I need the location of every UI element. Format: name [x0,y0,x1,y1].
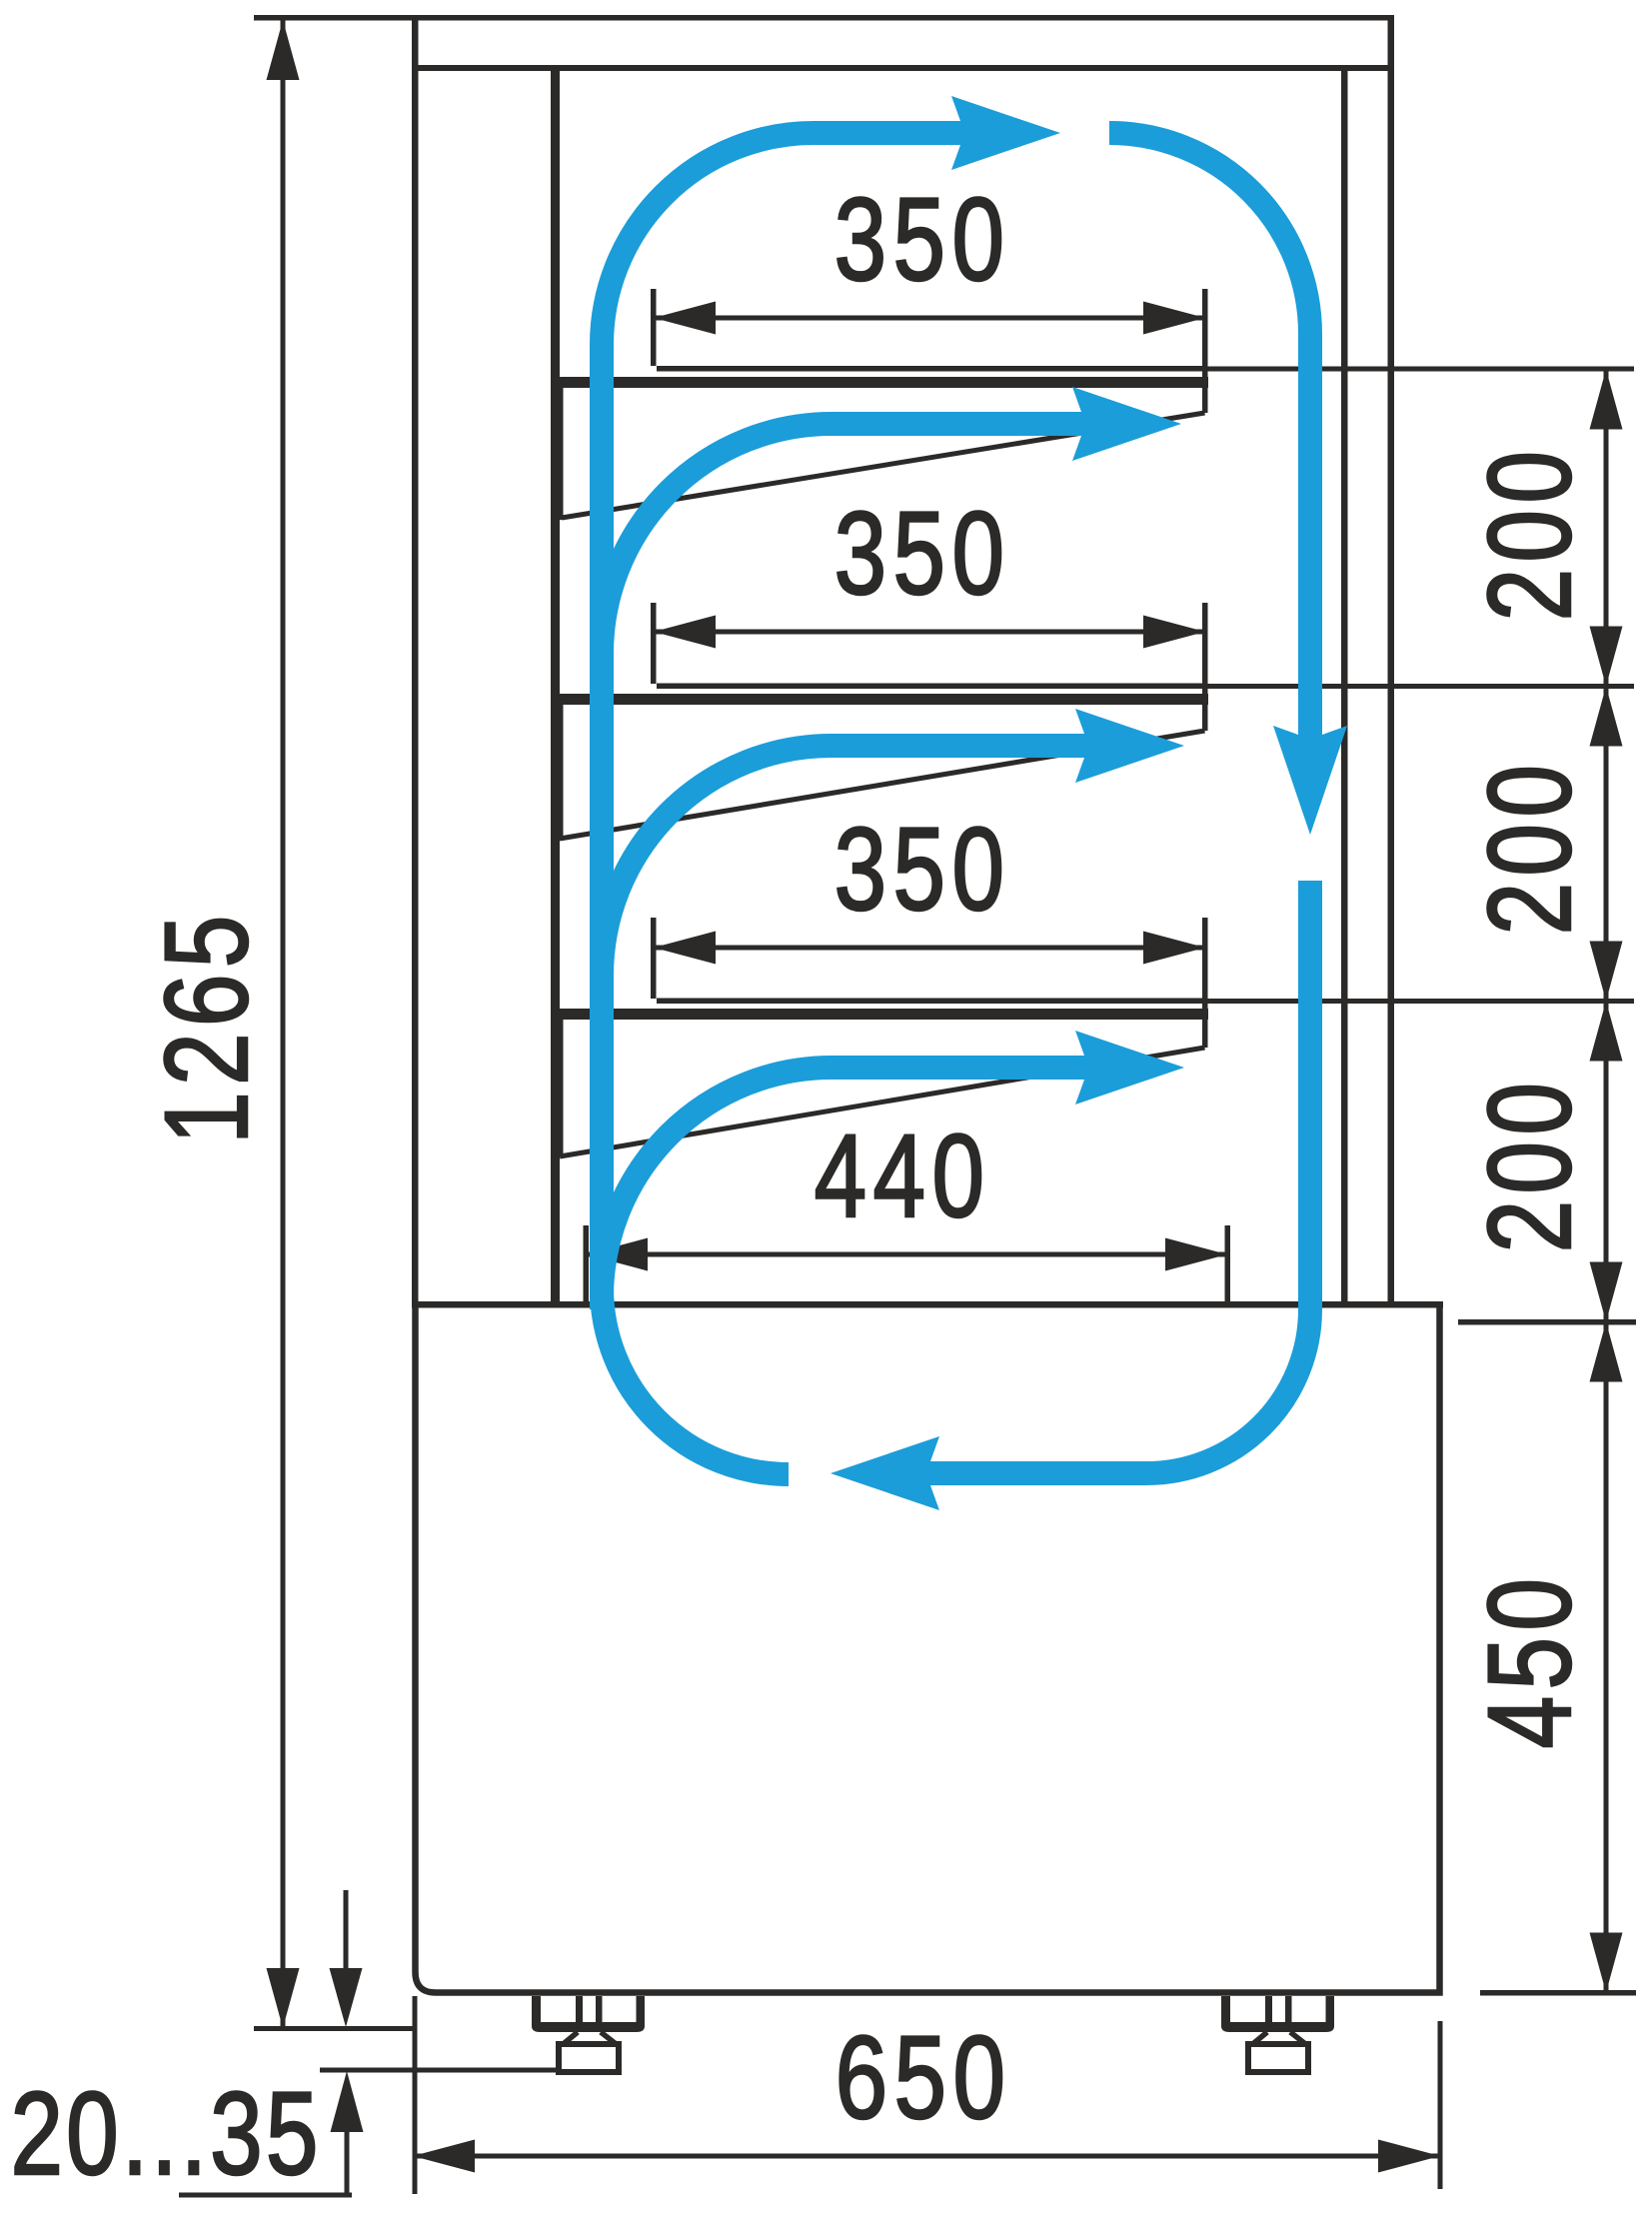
svg-text:20...35: 20...35 [10,2067,321,2200]
svg-text:650: 650 [835,2011,1012,2144]
svg-text:200: 200 [1463,759,1596,936]
svg-text:350: 350 [834,487,1011,620]
svg-text:450: 450 [1463,1572,1596,1749]
svg-text:350: 350 [834,173,1011,306]
svg-text:200: 200 [1463,445,1596,622]
svg-text:1265: 1265 [140,909,273,1144]
svg-text:200: 200 [1463,1077,1596,1253]
svg-text:440: 440 [815,1109,991,1242]
svg-text:350: 350 [834,803,1011,936]
